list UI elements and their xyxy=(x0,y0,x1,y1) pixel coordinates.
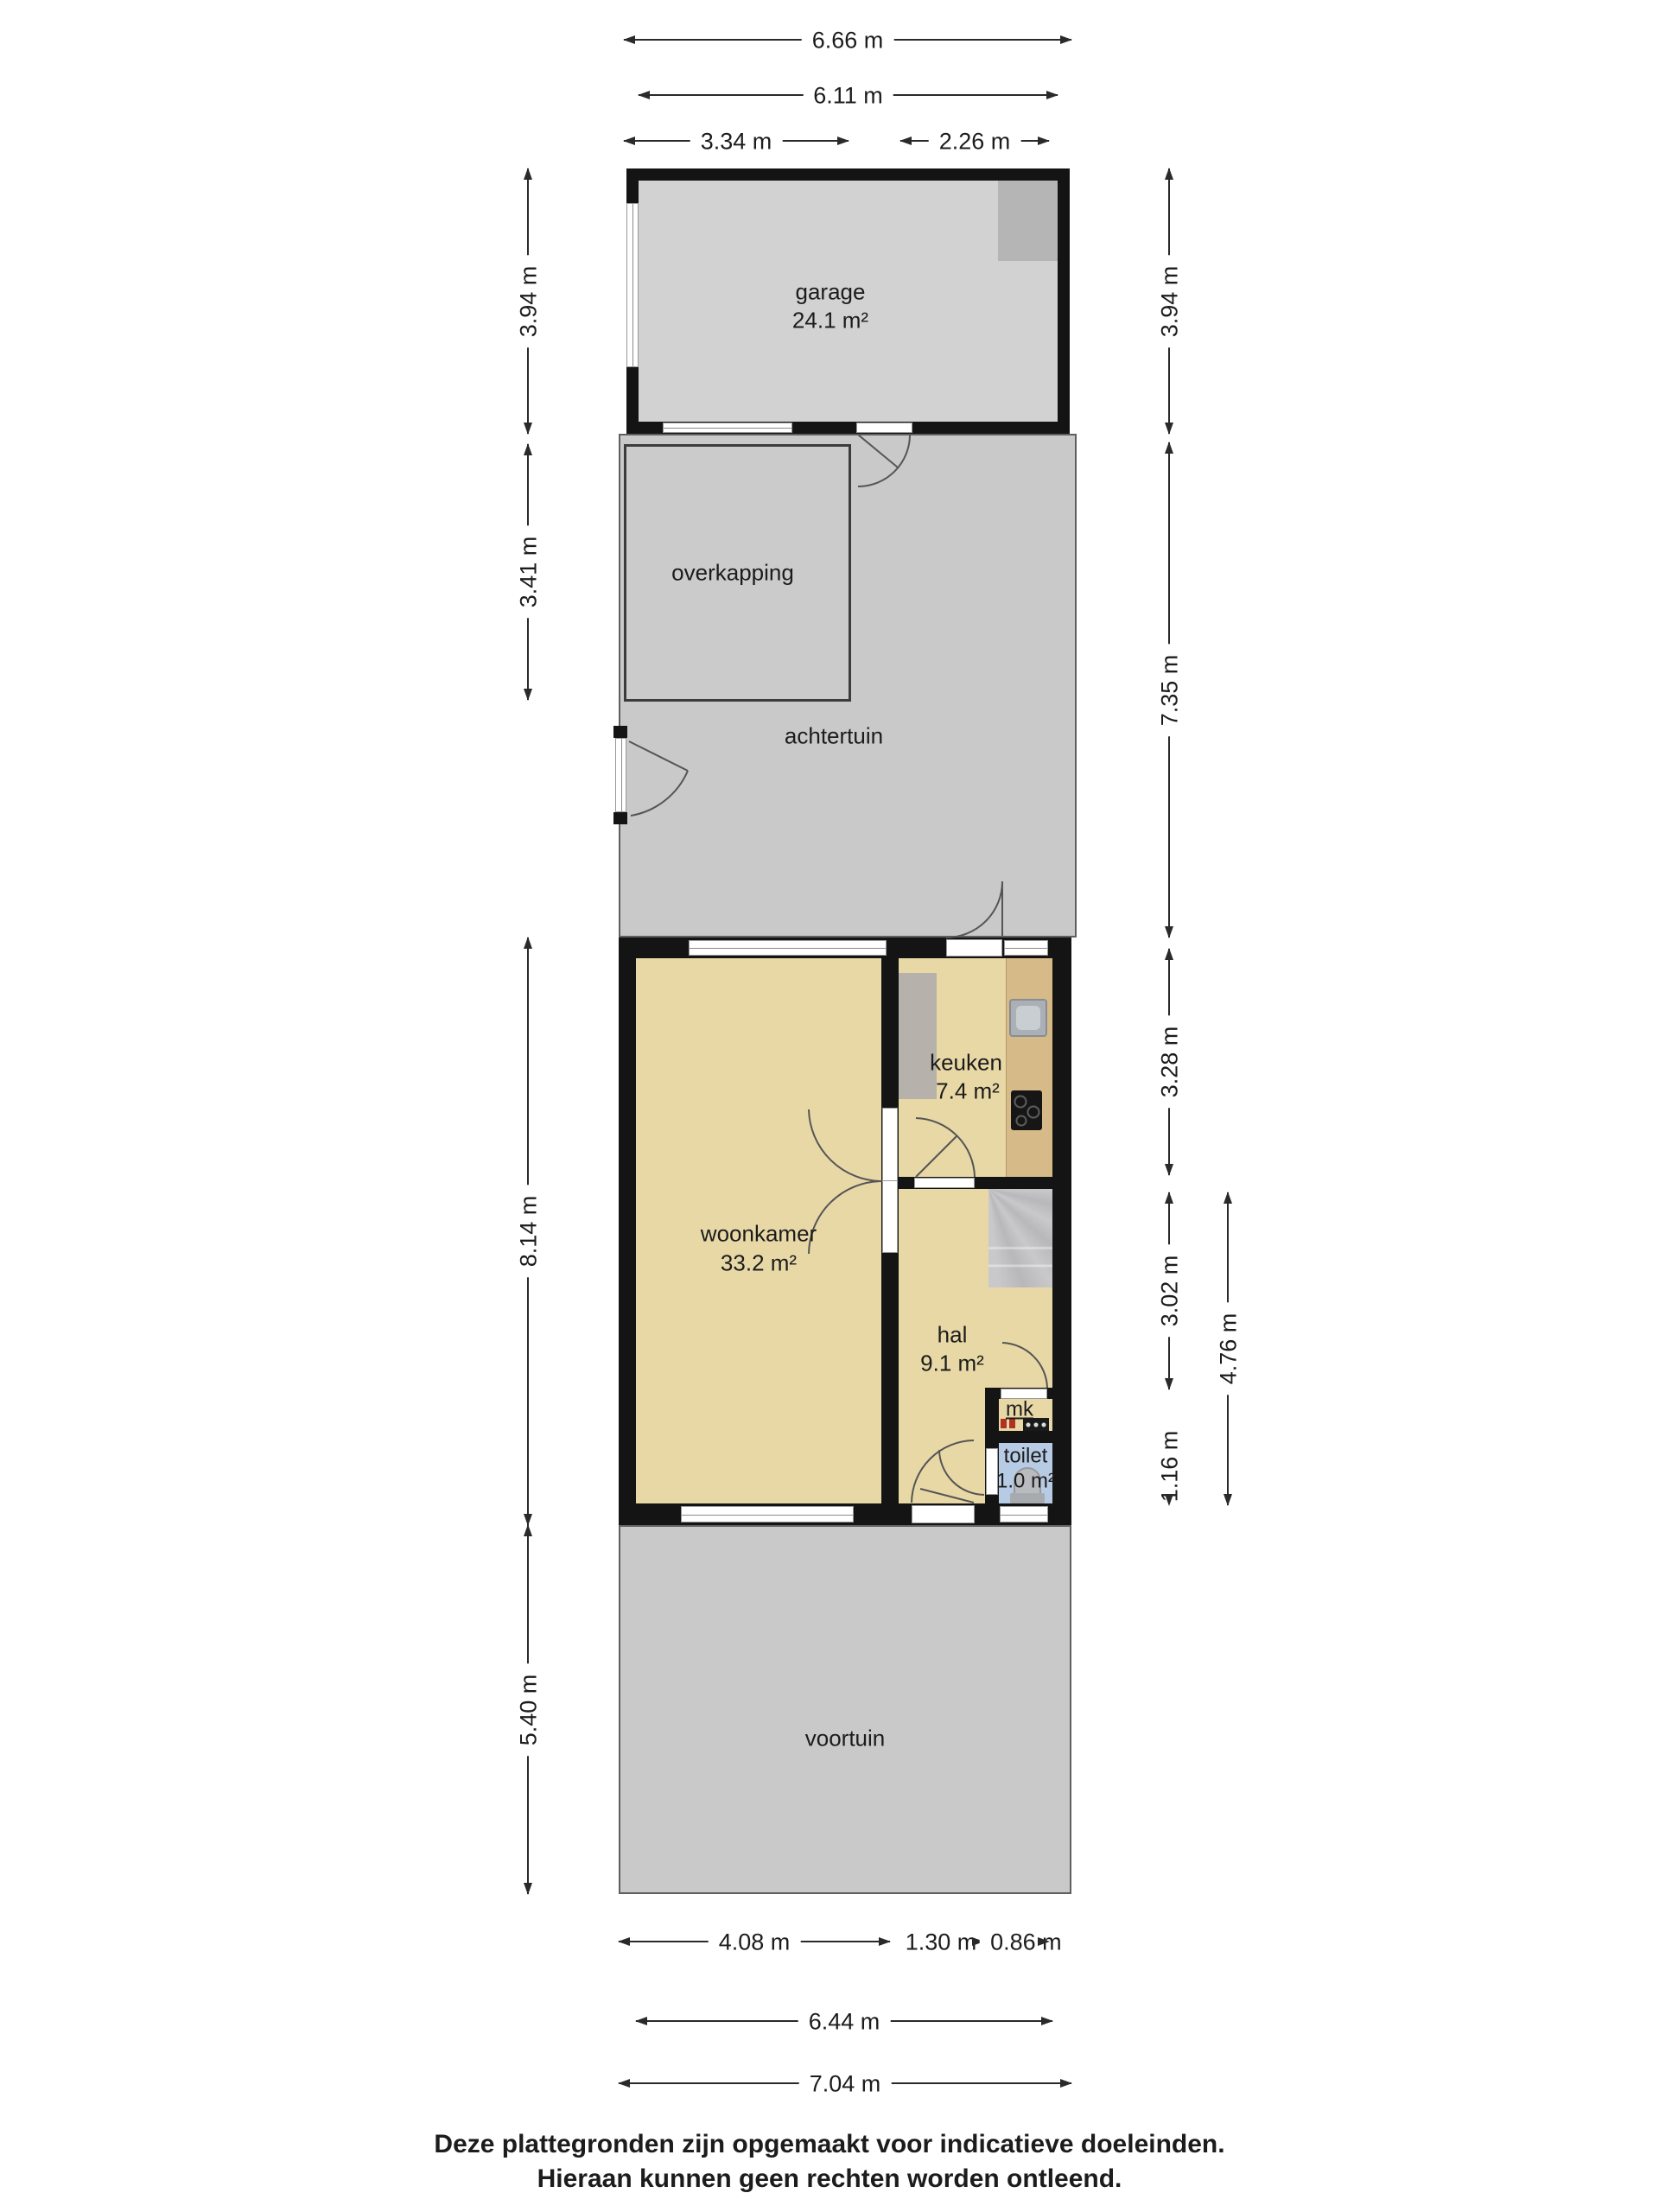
dim-hal-width: 1.30 m xyxy=(899,1941,983,1942)
garage-window-left xyxy=(626,203,639,367)
dim-toilet-depth: 1.16 m xyxy=(1168,1427,1170,1505)
kitchen-cabinet xyxy=(899,973,937,1099)
dim-overkapping-depth: 3.41 m xyxy=(527,444,529,700)
disclaimer-line-2: Hieraan kunnen geen rechten worden ontle… xyxy=(0,2162,1659,2196)
dim-woonkamer-width: 4.08 m xyxy=(619,1941,890,1942)
room-label-mk: mk xyxy=(1006,1397,1033,1422)
woonkamer-back-window xyxy=(689,940,887,956)
toilet-fixture-base xyxy=(1010,1493,1045,1503)
door-swing-arc xyxy=(627,738,707,817)
gate-wall-stub xyxy=(613,812,627,824)
dim-label: 3.28 m xyxy=(1157,1016,1184,1109)
door-swing-arc xyxy=(1001,1341,1049,1389)
room-area-keuken: 7.4 m² xyxy=(936,1077,1000,1106)
dim-garage-total-width: 6.66 m xyxy=(624,39,1071,41)
kitchen-counter xyxy=(1006,958,1052,1177)
dim-label: 3.34 m xyxy=(690,129,783,156)
door-swing-arc xyxy=(809,1108,883,1182)
room-label-hal: hal xyxy=(938,1321,968,1350)
keuken-door xyxy=(914,1178,975,1188)
room-voortuin xyxy=(619,1525,1071,1894)
woonkamer-front-window xyxy=(681,1506,854,1522)
front-door xyxy=(912,1505,975,1523)
dim-hal-depth: 3.02 m xyxy=(1168,1192,1170,1389)
dim-voortuin-depth: 5.40 m xyxy=(527,1525,529,1894)
hal-woonkamer-door xyxy=(882,1108,898,1253)
room-label-keuken: keuken xyxy=(930,1049,1002,1077)
dim-toilet-width: 0.86 m xyxy=(983,1941,1049,1942)
gate-wall-stub xyxy=(613,726,627,738)
dim-label: 1.30 m xyxy=(895,1929,988,1956)
garage-door xyxy=(856,423,912,433)
dim-label: 6.66 m xyxy=(802,28,894,54)
room-label-toilet: toilet xyxy=(1004,1444,1048,1469)
dim-label: 4.08 m xyxy=(709,1929,801,1956)
dim-house-total-width: 7.04 m xyxy=(619,2082,1071,2084)
dim-house-depth: 8.14 m xyxy=(527,938,529,1525)
room-label-woonkamer: woonkamer xyxy=(701,1220,817,1249)
toilet-front-window xyxy=(1000,1506,1048,1522)
room-area-woonkamer: 33.2 m² xyxy=(721,1249,797,1278)
dim-label: 3.02 m xyxy=(1157,1245,1184,1338)
room-label-garage: garage xyxy=(796,278,866,307)
garden-gate xyxy=(615,738,626,812)
dim-hal-toilet-depth: 4.76 m xyxy=(1227,1192,1229,1505)
room-label-voortuin: voortuin xyxy=(805,1725,886,1753)
dim-label: 1.16 m xyxy=(1157,1421,1184,1513)
dim-label: 3.94 m xyxy=(1157,255,1184,347)
dim-label: 4.76 m xyxy=(1216,1303,1243,1395)
dim-garage-right-section: 2.26 m xyxy=(900,140,1049,142)
dim-label: 6.11 m xyxy=(803,83,893,110)
door-swing-arc xyxy=(945,880,1003,938)
dim-label: 7.35 m xyxy=(1157,644,1184,736)
dim-garage-left-section: 3.34 m xyxy=(624,140,849,142)
room-area-hal: 9.1 m² xyxy=(920,1350,984,1378)
dim-keuken-depth: 3.28 m xyxy=(1168,949,1170,1175)
keuken-back-door xyxy=(946,939,1002,957)
dim-label: 6.44 m xyxy=(798,2009,891,2036)
dim-garage-inner-width: 6.11 m xyxy=(639,94,1058,96)
floorplan-canvas: 6.66 m 6.11 m 3.34 m 2.26 m 3.94 m 3.41 … xyxy=(0,0,1659,2212)
door-swing-arc xyxy=(914,1116,976,1179)
room-area-toilet: 1.0 m² xyxy=(996,1469,1055,1494)
dim-label: 3.41 m xyxy=(516,526,543,619)
door-swing-arc xyxy=(809,1181,883,1255)
kitchen-sink xyxy=(1009,999,1047,1037)
keuken-back-window xyxy=(1004,940,1048,956)
dim-house-inner-width: 6.44 m xyxy=(636,2020,1052,2022)
room-area-garage: 24.1 m² xyxy=(792,307,868,335)
dim-garage-depth-left: 3.94 m xyxy=(527,168,529,434)
dim-label: 0.86 m xyxy=(980,1929,1072,1956)
dim-label: 2.26 m xyxy=(929,129,1021,156)
dim-label: 3.94 m xyxy=(516,255,543,347)
garage-window-back xyxy=(663,423,792,433)
room-label-overkapping: overkapping xyxy=(671,559,794,588)
dim-label: 7.04 m xyxy=(799,2071,892,2098)
door-swing-arc xyxy=(856,433,912,488)
door-swing-arc xyxy=(912,1440,976,1504)
cooktop xyxy=(1011,1090,1042,1130)
dim-label: 8.14 m xyxy=(516,1185,543,1278)
attic-hatch xyxy=(998,181,1058,261)
dim-label: 5.40 m xyxy=(516,1663,543,1756)
dim-achtertuin-depth: 7.35 m xyxy=(1168,442,1170,938)
dim-garage-depth-right: 3.94 m xyxy=(1168,168,1170,434)
stairs xyxy=(988,1189,1052,1287)
disclaimer-line-1: Deze plattegronden zijn opgemaakt voor i… xyxy=(0,2127,1659,2162)
room-label-achtertuin: achtertuin xyxy=(785,722,883,751)
